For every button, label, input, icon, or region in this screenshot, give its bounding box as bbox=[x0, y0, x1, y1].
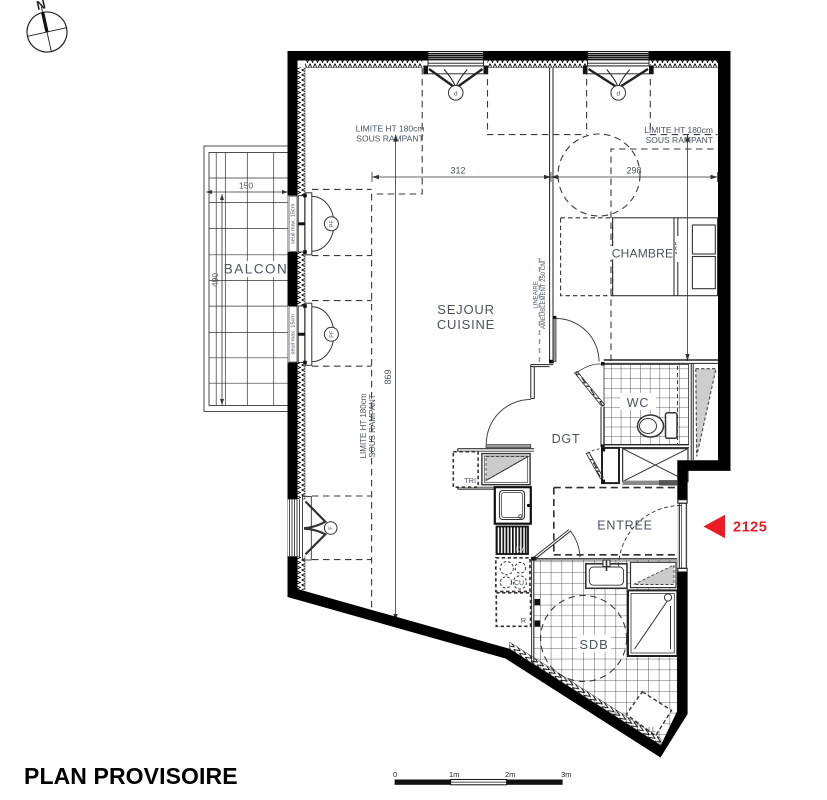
svg-text:SDB: SDB bbox=[579, 637, 608, 652]
svg-text:AMEUBLEMENT 250 CM: AMEUBLEMENT 250 CM bbox=[541, 261, 547, 329]
svg-text:298: 298 bbox=[626, 166, 641, 176]
svg-text:SEJOUR: SEJOUR bbox=[437, 302, 495, 317]
svg-text:PLAN PROVISOIRE: PLAN PROVISOIRE bbox=[24, 763, 238, 789]
svg-text:CUISINE: CUISINE bbox=[437, 317, 495, 332]
svg-text:BALCON: BALCON bbox=[224, 262, 289, 277]
svg-text:WC: WC bbox=[627, 396, 649, 410]
svg-text:0: 0 bbox=[393, 770, 397, 779]
svg-text:SOUS RAMPANT: SOUS RAMPANT bbox=[368, 394, 377, 458]
svg-text:490: 490 bbox=[210, 273, 220, 287]
svg-text:R: R bbox=[521, 616, 527, 625]
svg-text:PF: PF bbox=[329, 220, 335, 228]
svg-text:LV: LV bbox=[516, 547, 524, 554]
svg-text:1m: 1m bbox=[449, 770, 459, 779]
svg-text:CHAMBRE: CHAMBRE bbox=[612, 247, 673, 261]
svg-text:PF: PF bbox=[329, 330, 335, 338]
svg-text:3m: 3m bbox=[561, 770, 571, 779]
svg-text:869: 869 bbox=[383, 369, 393, 384]
svg-text:LIMITE HT 180cm: LIMITE HT 180cm bbox=[356, 124, 425, 134]
svg-text:SOUS RAMPANT: SOUS RAMPANT bbox=[646, 135, 713, 145]
svg-text:seuil max. 15cm: seuil max. 15cm bbox=[291, 314, 297, 355]
svg-text:d: d bbox=[454, 90, 458, 97]
svg-text:LIMITE HT 180cm: LIMITE HT 180cm bbox=[644, 125, 713, 135]
svg-text:312: 312 bbox=[450, 166, 465, 176]
svg-text:seuil max. 15cm: seuil max. 15cm bbox=[291, 203, 297, 244]
svg-text:LIMITE HT 180cm: LIMITE HT 180cm bbox=[359, 393, 368, 458]
svg-text:SOUS RAMPANT: SOUS RAMPANT bbox=[356, 134, 423, 144]
svg-text:DGT: DGT bbox=[552, 432, 581, 446]
svg-text:2125: 2125 bbox=[733, 520, 767, 536]
svg-text:d: d bbox=[616, 90, 620, 97]
svg-text:2m: 2m bbox=[505, 770, 515, 779]
svg-text:CU: CU bbox=[514, 580, 524, 587]
svg-text:150: 150 bbox=[239, 181, 253, 191]
svg-text:LINEAIRE: LINEAIRE bbox=[534, 281, 540, 308]
svg-text:TRI: TRI bbox=[464, 476, 476, 485]
svg-text:ENTREE: ENTREE bbox=[597, 519, 653, 533]
